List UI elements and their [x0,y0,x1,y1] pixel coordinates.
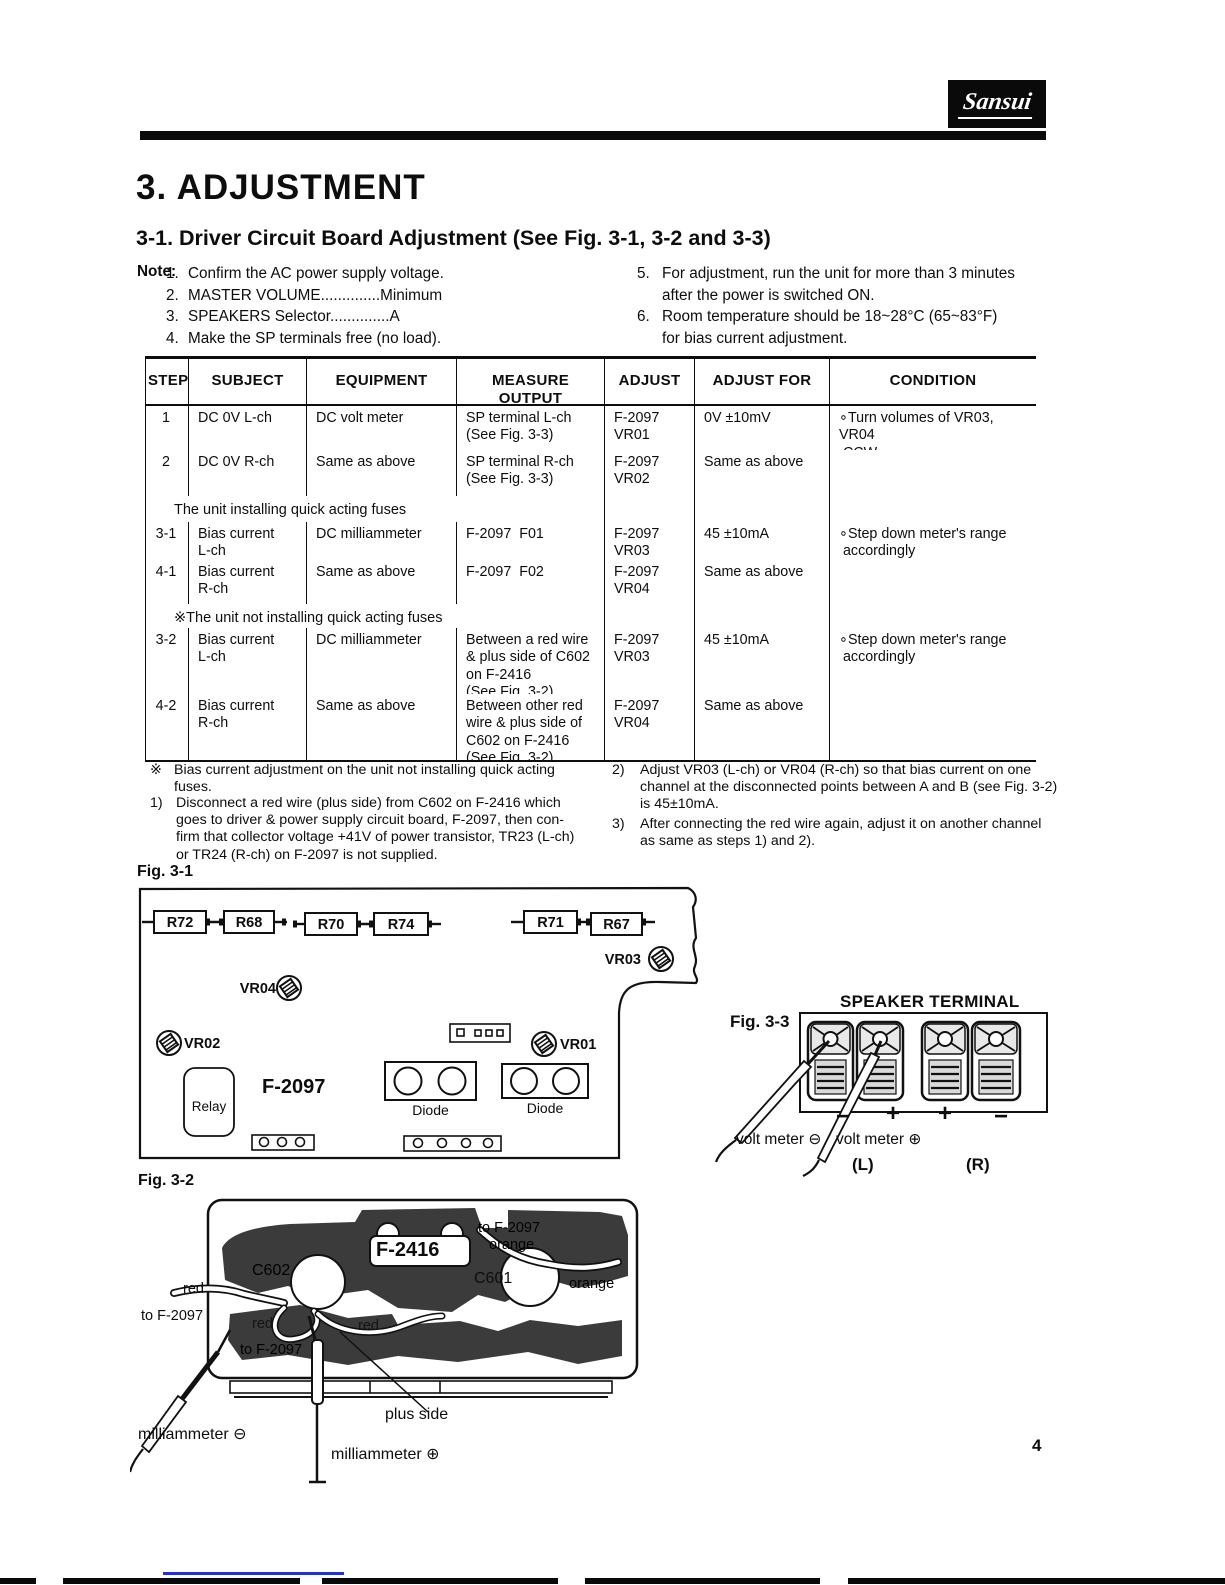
column-header: SUBJECT [188,359,306,404]
edge-connector [230,1381,612,1393]
column-header: MEASURE OUTPUT [456,359,604,404]
note-number: 4. [166,328,188,350]
table-cell: 3-2 [146,628,188,694]
milliammeter-neg-label: milliammeter ⊖ [138,1424,247,1444]
page-number: 4 [1032,1436,1041,1456]
table-row: The unit installing quick acting fuses [146,496,1036,522]
table-cell: Bias current R-ch [188,560,306,604]
table-cell: Bias current R-ch [188,694,306,760]
table-cell: 45 ±10mA [694,628,829,694]
table-row: 4-2Bias current R-chSame as aboveBetween… [146,694,1036,760]
diode-blocks [385,1062,588,1100]
table-cell: Same as above [694,450,829,496]
scan-mark-bar [63,1578,300,1584]
footnote: 1) Disconnect a red wire (plus side) fro… [150,795,606,864]
table-cell: Same as above [306,560,456,604]
table-cell: ∘Turn volumes of VR03, VR04 CCW [829,406,1036,450]
table-cell: SP terminal R-ch (See Fig. 3-3) [456,450,604,496]
table-cell: F-2097 F01 [456,522,604,560]
footnote: 3) After connecting the red wire again, … [612,816,1060,850]
table-section-label: ※The unit not installing quick acting fu… [146,604,604,628]
resistor-label: R68 [224,912,274,934]
brand-logo-text: Sansui [958,89,1036,119]
footnote-text: Adjust VR03 (L-ch) or VR04 (R-ch) so tha… [640,762,1060,814]
plus-side-label: plus side [385,1406,448,1424]
diode-label: Diode [502,1100,588,1116]
note-text: Confirm the AC power supply voltage. [188,263,618,285]
footnote-marker: 1) [150,795,176,864]
table-cell: 4-1 [146,560,188,604]
scan-mark-bar [322,1578,558,1584]
trimmer-label-vr03: VR03 [597,952,641,968]
table-cell: Bias current L-ch [188,628,306,694]
pin-strips [252,1135,501,1151]
table-cell: 2 [146,450,188,496]
table-cell: F-2097 VR02 [604,450,694,496]
table-cell: F-2097 VR01 [604,406,694,450]
table-cell: ∘Step down meter's range accordingly [829,628,1036,694]
diode-label: Diode [385,1102,476,1118]
table-cell: Same as above [306,694,456,760]
wire-label-red-left: red [183,1281,204,1297]
table-cell: DC milliammeter [306,628,456,694]
fig33-speaker-terminal-drawing [715,990,1060,1190]
wire-label-orange-top: orange [489,1237,534,1253]
brand-logo: Sansui [948,80,1046,128]
note-item: 4. Make the SP terminals free (no load). [166,328,618,350]
board-name-f2416: F-2416 [376,1239,439,1262]
resistor-label: R67 [591,914,642,936]
table-cell [829,560,1036,604]
table-cell: F-2097 F02 [456,560,604,604]
footnote-text: Disconnect a red wire (plus side) from C… [176,795,606,864]
table-cell: Bias current L-ch [188,522,306,560]
note-number: 3. [166,306,188,328]
resistor-label: R71 [524,912,577,934]
connector [450,1024,510,1042]
adjustment-table: STEPSUBJECTEQUIPMENTMEASURE OUTPUTADJUST… [145,356,1036,762]
terminal-polarity: − [836,1103,850,1131]
note-text: For adjustment, run the unit for more th… [662,263,1062,306]
table-row: 4-1Bias current R-chSame as aboveF-2097 … [146,560,1036,604]
note-item: 6. Room temperature should be 18~28°C (6… [637,306,1062,349]
trimmer-label-vr01: VR01 [560,1037,596,1053]
footnote-marker: ※ [150,762,174,796]
note-item: 1. Confirm the AC power supply voltage. [166,263,618,285]
volt-meter-neg-label: volt meter ⊖ [736,1130,821,1149]
table-cell: F-2097 VR04 [604,560,694,604]
table-cell: 0V ±10mV [694,406,829,450]
channel-left-label: (L) [852,1155,874,1175]
table-section-label: The unit installing quick acting fuses [146,496,604,522]
note-text: MASTER VOLUME..............Minimum [188,285,618,307]
table-cell [829,694,1036,760]
capacitor-label-c601: C601 [474,1270,512,1288]
table-row: ※The unit not installing quick acting fu… [146,604,1036,628]
note-number: 1. [166,263,188,285]
footnote-marker: 3) [612,816,640,850]
footnote: ※ Bias current adjustment on the unit no… [150,762,604,796]
scan-mark-blue-line [163,1572,344,1575]
note-text: SPEAKERS Selector..............A [188,306,618,328]
wire-label-red-mid: red [252,1316,273,1332]
table-cell [829,496,1036,522]
table-cell: 4-2 [146,694,188,760]
table-cell [829,604,1036,628]
resistor-label: R72 [154,912,206,934]
channel-right-label: (R) [966,1155,990,1175]
table-cell: Between other red wire & plus side of C6… [456,694,604,760]
wire-label-to-f2097-left: to F-2097 [141,1308,203,1324]
note-item: 3. SPEAKERS Selector..............A [166,306,618,328]
table-cell: Same as above [694,694,829,760]
board-name-f2097: F-2097 [262,1076,325,1099]
table-cell: F-2097 VR03 [604,522,694,560]
table-row: 3-2Bias current L-chDC milliammeterBetwe… [146,628,1036,694]
table-cell: Between a red wire & plus side of C602 o… [456,628,604,694]
capacitor-c602 [291,1255,345,1309]
trimmer-vr04-icon [277,976,301,1000]
relay-label: Relay [182,1099,236,1114]
table-cell: F-2097 VR03 [604,628,694,694]
table-cell: Same as above [694,560,829,604]
table-cell: 3-1 [146,522,188,560]
column-header: ADJUST [604,359,694,404]
table-cell [694,604,829,628]
table-cell: Same as above [306,450,456,496]
milliammeter-pos-label: milliammeter ⊕ [331,1444,440,1464]
note-number: 2. [166,285,188,307]
trimmer-label-vr04: VR04 [232,981,276,997]
table-cell [604,604,694,628]
terminal-polarity: + [938,1100,952,1128]
table-cell: 45 ±10mA [694,522,829,560]
column-header: STEP [146,359,188,404]
fig31-caption: Fig. 3-1 [137,863,193,881]
footnote-text: After connecting the red wire again, adj… [640,816,1060,850]
resistor-label: R70 [305,914,357,936]
table-row: 3-1Bias current L-chDC milliammeterF-209… [146,522,1036,560]
capacitor-label-c602: C602 [252,1262,290,1280]
wire-label-to-f2097-bottom: to F-2097 [240,1342,302,1358]
scan-mark-bar [848,1578,1225,1584]
wire-label-red-mid: red [358,1318,379,1334]
wire-label-to-f2097-top: to F-2097 [478,1220,540,1236]
manual-page: Sansui 3. ADJUSTMENT 3-1. Driver Circuit… [0,0,1225,1585]
note-item: 5. For adjustment, run the unit for more… [637,263,1062,306]
terminal-polarity: + [886,1100,900,1128]
scan-mark-bar [585,1578,820,1584]
table-cell: F-2097 VR04 [604,694,694,760]
table-cell [604,496,694,522]
table-cell: SP terminal L-ch (See Fig. 3-3) [456,406,604,450]
note-number: 6. [637,306,662,349]
table-cell: DC 0V L-ch [188,406,306,450]
table-cell [829,450,1036,496]
table-header-row: STEPSUBJECTEQUIPMENTMEASURE OUTPUTADJUST… [146,359,1036,406]
note-text: Make the SP terminals free (no load). [188,328,618,350]
note-item: 2. MASTER VOLUME..............Minimum [166,285,618,307]
column-header: EQUIPMENT [306,359,456,404]
section-title: 3-1. Driver Circuit Board Adjustment (Se… [136,226,771,251]
wire-label-orange-right: orange [569,1276,614,1292]
trimmer-vr03-icon [649,947,673,971]
footnote: 2) Adjust VR03 (L-ch) or VR04 (R-ch) so … [612,762,1060,814]
table-cell: ∘Step down meter's range accordingly [829,522,1036,560]
footnote-text: Bias current adjustment on the unit not … [174,762,604,796]
table-cell: DC 0V R-ch [188,450,306,496]
table-row: 1DC 0V L-chDC volt meterSP terminal L-ch… [146,406,1036,450]
terminal-polarity: − [994,1103,1008,1131]
trimmer-label-vr02: VR02 [184,1036,220,1052]
table-cell [694,496,829,522]
note-number: 5. [637,263,662,306]
page-title: 3. ADJUSTMENT [136,168,426,208]
trimmer-vr01-icon [532,1032,556,1056]
table-cell: DC milliammeter [306,522,456,560]
table-row: 2DC 0V R-chSame as aboveSP terminal R-ch… [146,450,1036,496]
column-header: CONDITION [829,359,1036,404]
volt-meter-pos-label: volt meter ⊕ [836,1130,921,1149]
footnote-marker: 2) [612,762,640,814]
table-cell: 1 [146,406,188,450]
resistor-label: R74 [374,914,428,936]
note-text: Room temperature should be 18~28°C (65~8… [662,306,1062,349]
trimmer-vr02-icon [157,1031,181,1055]
table-cell: DC volt meter [306,406,456,450]
scan-mark-bar [0,1578,36,1584]
fig32-caption: Fig. 3-2 [138,1172,194,1190]
header-rule [140,131,1046,140]
column-header: ADJUST FOR [694,359,829,404]
